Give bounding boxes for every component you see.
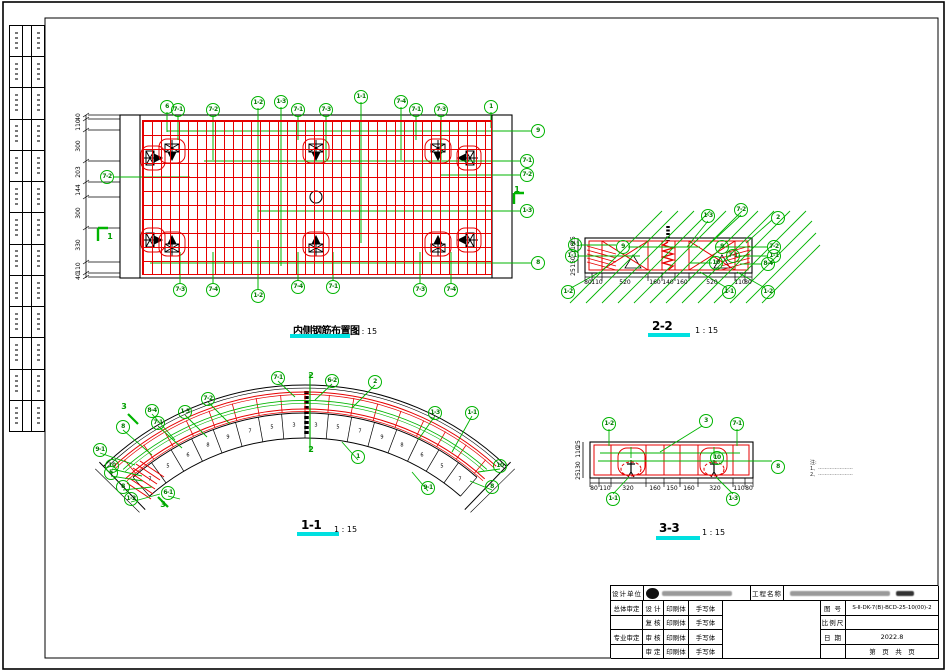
arch-segment-number: 9 [380, 436, 383, 441]
role-cell: 总体审定 [611, 601, 643, 616]
revision-cell [32, 245, 44, 275]
rebar-callout: 7-2 [100, 170, 114, 184]
arch-segment-number: 6 [186, 454, 189, 459]
illegible-text [37, 63, 40, 82]
revision-cell [32, 57, 44, 87]
design-unit-value [644, 586, 751, 601]
illegible-text [37, 344, 40, 363]
revision-cell [32, 26, 44, 56]
dimension-label: 80 [590, 486, 598, 492]
revision-strip-row [10, 26, 44, 57]
section22-scale: 1 : 15 [695, 326, 718, 335]
rebar-callout: 7-1 [520, 154, 534, 168]
rebar-callout: 2 [771, 211, 785, 225]
sign-cell: 手写体 [689, 616, 723, 631]
revision-cell [10, 88, 23, 118]
plan-rebar-mesh [142, 120, 492, 275]
illegible-text [15, 188, 18, 207]
dimension-label: 160 [683, 486, 694, 492]
pages-spacer [821, 645, 846, 660]
rebar-callout: 7-4 [206, 283, 220, 297]
project-name-value [784, 586, 939, 601]
title-block: 设计单位 工程名称 总体审定 设 计 印刷体 手写体 复 核 印刷体 手写体 专… [610, 585, 938, 658]
rebar-callout: 9 [616, 240, 630, 254]
section-cut-mark: 2 [308, 446, 314, 454]
revision-strip-row [10, 370, 44, 401]
title-underline [656, 536, 700, 540]
revision-cell [23, 276, 32, 306]
revision-cell [10, 370, 23, 400]
rebar-callout: 7-4 [291, 280, 305, 294]
revision-cell [10, 182, 23, 212]
illegible-text [37, 375, 40, 394]
rebar-callout: 1-1 [565, 249, 579, 263]
dimension-label: 160 [676, 280, 687, 286]
rebar-callout: 7-1 [326, 280, 340, 294]
rebar-callout: 7-3 [319, 103, 333, 117]
illegible-text [15, 63, 18, 82]
revision-cell [10, 57, 23, 87]
title-underline [297, 532, 339, 536]
revision-cell [23, 151, 32, 181]
dimension-label: 25 [576, 472, 582, 480]
revision-cell [32, 338, 44, 368]
illegible-text [37, 250, 40, 269]
design-unit-label: 设计单位 [611, 586, 644, 601]
rebar-callout: 10 [709, 256, 723, 270]
rebar-callout: 1-1 [354, 90, 368, 104]
revision-cell [10, 401, 23, 431]
revision-cell [23, 57, 32, 87]
arch-segment-number: 9 [226, 436, 229, 441]
rebar-callout: 3 [699, 414, 713, 428]
dimension-label: 160 [649, 280, 660, 286]
dimension-label: 80 [745, 486, 753, 492]
rebar-callout: 7-3 [413, 283, 427, 297]
rebar-callout: 10 [493, 459, 507, 473]
scale-label: 比例尺 [821, 616, 846, 631]
illegible-text [37, 219, 40, 238]
section22-title: 2-2 [652, 319, 672, 333]
rebar-callout: 2 [368, 375, 382, 389]
role-cell: 设 计 [643, 601, 664, 616]
dimension-label: 110 [76, 119, 82, 130]
plan-view-scale: 1 : 15 [354, 327, 377, 336]
revision-cell [23, 88, 32, 118]
revision-cell [23, 401, 32, 431]
figure-number-label: 图 号 [821, 601, 846, 616]
revision-cell [10, 26, 23, 56]
revision-strip-row [10, 276, 44, 307]
stamp-blurred [896, 591, 914, 596]
illegible-text [15, 125, 18, 144]
signature-area [723, 601, 821, 659]
section33-leaders [598, 426, 772, 494]
sign-cell: 手写体 [689, 645, 723, 660]
rebar-callout: 8 [771, 460, 785, 474]
revision-cell [23, 307, 32, 337]
revision-strip-row [10, 213, 44, 244]
rebar-callout: 7-2 [206, 103, 220, 117]
name-cell: 印刷体 [664, 616, 689, 631]
rebar-callout: 10 [710, 451, 724, 465]
rebar-callout: 6-2 [325, 374, 339, 388]
revision-cell [32, 307, 44, 337]
dimension-label: 144 [76, 184, 82, 195]
section33-title: 3-3 [659, 521, 679, 535]
illegible-text [37, 125, 40, 144]
rebar-callout: 1 [484, 100, 498, 114]
dimension-label: 110 [591, 280, 602, 286]
arch-segment-number: 7 [248, 430, 251, 435]
revision-cell [10, 338, 23, 368]
rebar-callout: 7-3 [434, 103, 448, 117]
rebar-callout: 1-2 [251, 289, 265, 303]
rebar-callout: 7-2 [201, 392, 215, 406]
revision-strip-row [10, 401, 44, 431]
company-logo [646, 588, 659, 599]
arch-segment-number: 6 [420, 454, 423, 459]
cad-drawing-page: 67-17-21-21-37-17-31-17-47-17-3197-17-21… [0, 0, 947, 671]
revision-cell [32, 401, 44, 431]
role-cell [611, 616, 643, 631]
pages-value: 第 页 共 页 [846, 645, 939, 660]
rebar-callout: 1 [351, 450, 365, 464]
revision-cell [32, 151, 44, 181]
revision-cell [23, 213, 32, 243]
rebar-callout: 9-1 [93, 443, 107, 457]
rebar-callout: 7-1 [726, 249, 740, 263]
date-label: 日 期 [821, 630, 846, 645]
arch-segment-number: 7 [148, 478, 151, 483]
drawing-frame [3, 2, 944, 669]
arch-segment-number: 5 [440, 465, 443, 470]
role-cell: 复 核 [643, 616, 664, 631]
arch-segment-number: 8 [206, 444, 209, 449]
revision-cell [32, 370, 44, 400]
drawing-linework [0, 0, 947, 671]
section-cut-mark: 3 [121, 403, 127, 411]
dimension-label: 140 [662, 280, 673, 286]
rebar-callout: 8 [485, 480, 499, 494]
arch-segment-number: 5 [270, 426, 273, 431]
revision-strip-row [10, 307, 44, 338]
name-cell: 印刷体 [664, 601, 689, 616]
revision-cell [10, 276, 23, 306]
revision-cell [10, 120, 23, 150]
dimension-label: 330 [76, 239, 82, 250]
sign-cell: 手写体 [689, 601, 723, 616]
dimension-label: 300 [76, 207, 82, 218]
rebar-callout: 1-1 [606, 492, 620, 506]
sign-cell: 手写体 [689, 630, 723, 645]
illegible-text [37, 313, 40, 332]
rebar-callout: 7-1 [171, 103, 185, 117]
illegible-text [37, 32, 40, 51]
illegible-text [37, 188, 40, 207]
company-name-blurred [662, 591, 732, 596]
dimension-label: 80 [744, 280, 752, 286]
project-name-blurred [790, 591, 890, 596]
rebar-callout: 1-3 [701, 209, 715, 223]
dimension-label: 150 [666, 486, 677, 492]
illegible-text [37, 282, 40, 301]
revision-strip-row [10, 57, 44, 88]
rebar-callout: 9 [531, 124, 545, 138]
rebar-callout: 6-1 [161, 486, 175, 500]
rebar-callout: 7-2 [520, 168, 534, 182]
rebar-callout: 7-1 [151, 416, 165, 430]
dimension-label: 320 [709, 486, 720, 492]
illegible-text [15, 282, 18, 301]
rebar-callout: 8 [116, 420, 130, 434]
rebar-callout: 8 [531, 256, 545, 270]
arch-segment-number: 3 [292, 424, 295, 429]
section-cut-mark: 2 [308, 372, 314, 380]
illegible-text [15, 407, 18, 426]
revision-strip-row [10, 120, 44, 151]
revision-cell [23, 338, 32, 368]
title-underline [290, 334, 350, 338]
revision-cell [10, 213, 23, 243]
arch-segment-number: 7 [358, 430, 361, 435]
rebar-callout: 1-1 [722, 285, 736, 299]
role-cell: 审 定 [643, 645, 664, 660]
date-value: 2022.8 [846, 630, 939, 645]
rebar-callout: 7-4 [444, 283, 458, 297]
arch-segment-number: 7 [458, 478, 461, 483]
rebar-callout: 1-3 [178, 405, 192, 419]
revision-strip [9, 25, 45, 432]
figure-number-value: S-Ⅱ-DK-7(B)-BCD-25-10(00)-2 [846, 601, 939, 616]
revision-strip-row [10, 88, 44, 119]
rebar-callout: 7-1 [730, 417, 744, 431]
dimension-label: 25 [571, 268, 577, 276]
revision-strip-row [10, 338, 44, 369]
revision-cell [32, 120, 44, 150]
dimension-label: 520 [706, 280, 717, 286]
section33-scale: 1 : 15 [702, 528, 725, 537]
dimension-label: 40 [76, 272, 82, 280]
rebar-callout: 1-2 [561, 285, 575, 299]
title-underline [648, 333, 690, 337]
revision-cell [32, 182, 44, 212]
dimension-label: 110 [599, 486, 610, 492]
dimension-label: 520 [619, 280, 630, 286]
revision-strip-row [10, 245, 44, 276]
scale-value [846, 616, 939, 631]
illegible-text [37, 157, 40, 176]
role-cell [611, 645, 643, 660]
rebar-callout: 8-4 [761, 257, 775, 271]
section11-title: 1-1 [301, 518, 321, 532]
section33-rebar [594, 445, 749, 476]
revision-cell [23, 26, 32, 56]
illegible-text [15, 157, 18, 176]
project-name-label: 工程名称 [751, 586, 784, 601]
revision-cell [23, 370, 32, 400]
dimension-label: 110 [733, 486, 744, 492]
revision-strip-row [10, 151, 44, 182]
rebar-callout: 7-4 [394, 95, 408, 109]
arch-segment-number: 8 [400, 444, 403, 449]
rebar-callout: 1-3 [274, 95, 288, 109]
arch-segment-number: 5 [336, 426, 339, 431]
dimension-label: 110 [576, 446, 582, 457]
revision-cell [23, 120, 32, 150]
arch-segment-number: 3 [314, 424, 317, 429]
rebar-callout: 1-3 [726, 492, 740, 506]
rebar-callout: 1-2 [602, 417, 616, 431]
role-cell: 专业审定 [611, 630, 643, 645]
drawing-note: 注: 1、⋯⋯⋯⋯⋯⋯⋯ 2、⋯⋯⋯⋯⋯⋯⋯ [810, 460, 853, 478]
illegible-text [15, 32, 18, 51]
revision-cell [23, 182, 32, 212]
rebar-callout: 7-1 [291, 103, 305, 117]
revision-cell [32, 276, 44, 306]
illegible-text [15, 344, 18, 363]
illegible-text [15, 219, 18, 238]
illegible-text [15, 250, 18, 269]
role-cell: 审 核 [643, 630, 664, 645]
dimension-label: 300 [76, 140, 82, 151]
illegible-text [15, 94, 18, 113]
illegible-text [37, 407, 40, 426]
section22-leaders [570, 211, 820, 303]
illegible-text [15, 375, 18, 394]
dimension-label: 160 [649, 486, 660, 492]
illegible-text [15, 313, 18, 332]
revision-cell [10, 151, 23, 181]
rebar-callout: 1-2 [251, 96, 265, 110]
arch-segment-number: 5 [166, 465, 169, 470]
dimension-label: 203 [76, 166, 82, 177]
revision-cell [23, 245, 32, 275]
rebar-callout: 1-2 [761, 285, 775, 299]
rebar-callout: 9-1 [421, 481, 435, 495]
rebar-callout: 7-3 [173, 283, 187, 297]
rebar-callout: 7-1 [271, 371, 285, 385]
name-cell: 印刷体 [664, 630, 689, 645]
dimension-label: 320 [622, 486, 633, 492]
revision-strip-row [10, 182, 44, 213]
revision-cell [32, 88, 44, 118]
rebar-callout: 7-2 [734, 203, 748, 217]
section-cut-mark: 3 [160, 501, 166, 509]
rebar-callout: 1-2 [124, 492, 138, 506]
rebar-callout: 5 [104, 466, 118, 480]
rebar-callout: 7-1 [409, 103, 423, 117]
rebar-callout: 1-1 [465, 406, 479, 420]
note-line: 2、⋯⋯⋯⋯⋯⋯⋯ [810, 472, 853, 478]
section11-scale: 1 : 15 [334, 525, 357, 534]
rebar-callout: 1-3 [428, 406, 442, 420]
revision-cell [10, 307, 23, 337]
revision-cell [10, 245, 23, 275]
rebar-callout: 1-3 [520, 204, 534, 218]
section-cut-mark: 1 [107, 233, 113, 241]
revision-cell [32, 213, 44, 243]
illegible-text [37, 94, 40, 113]
name-cell: 印刷体 [664, 645, 689, 660]
section-cut-mark: 1 [514, 186, 520, 194]
